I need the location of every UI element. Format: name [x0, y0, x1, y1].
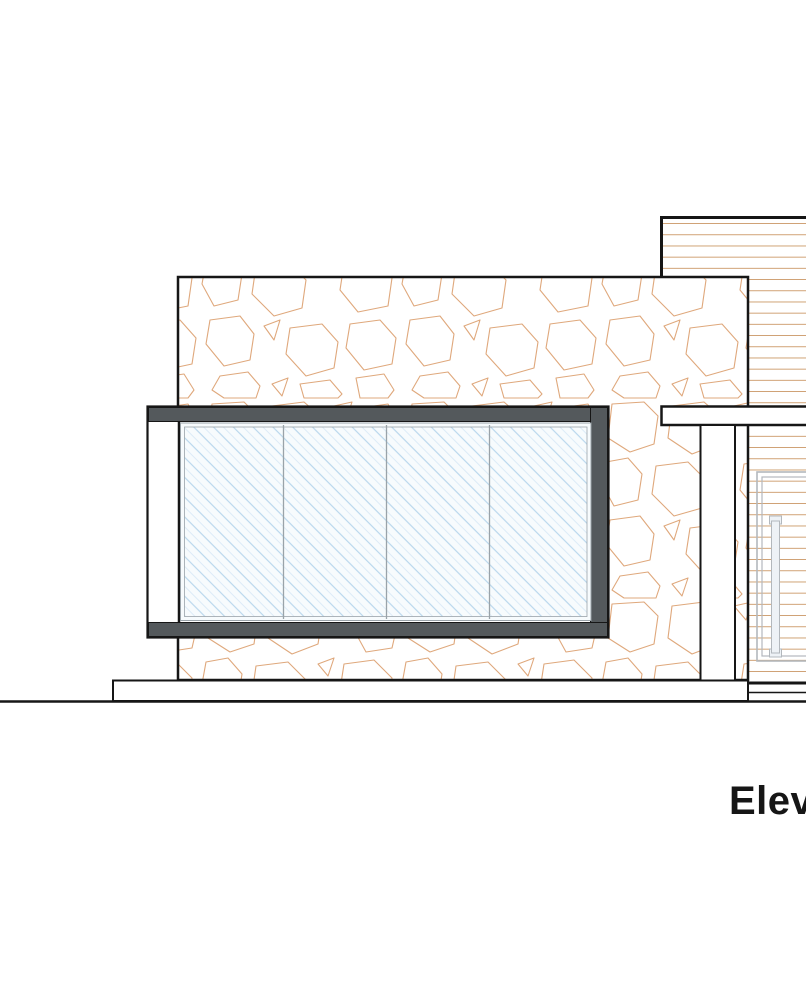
canopy-beam: [662, 407, 806, 426]
column-post: [701, 425, 736, 681]
window-glazing: [181, 423, 592, 621]
plinth-base: [113, 681, 748, 702]
corner-window: [148, 407, 609, 638]
door-handle: [770, 516, 782, 657]
elevation-title: Elev: [729, 779, 806, 823]
elevation-drawing: Elev: [0, 0, 806, 1008]
